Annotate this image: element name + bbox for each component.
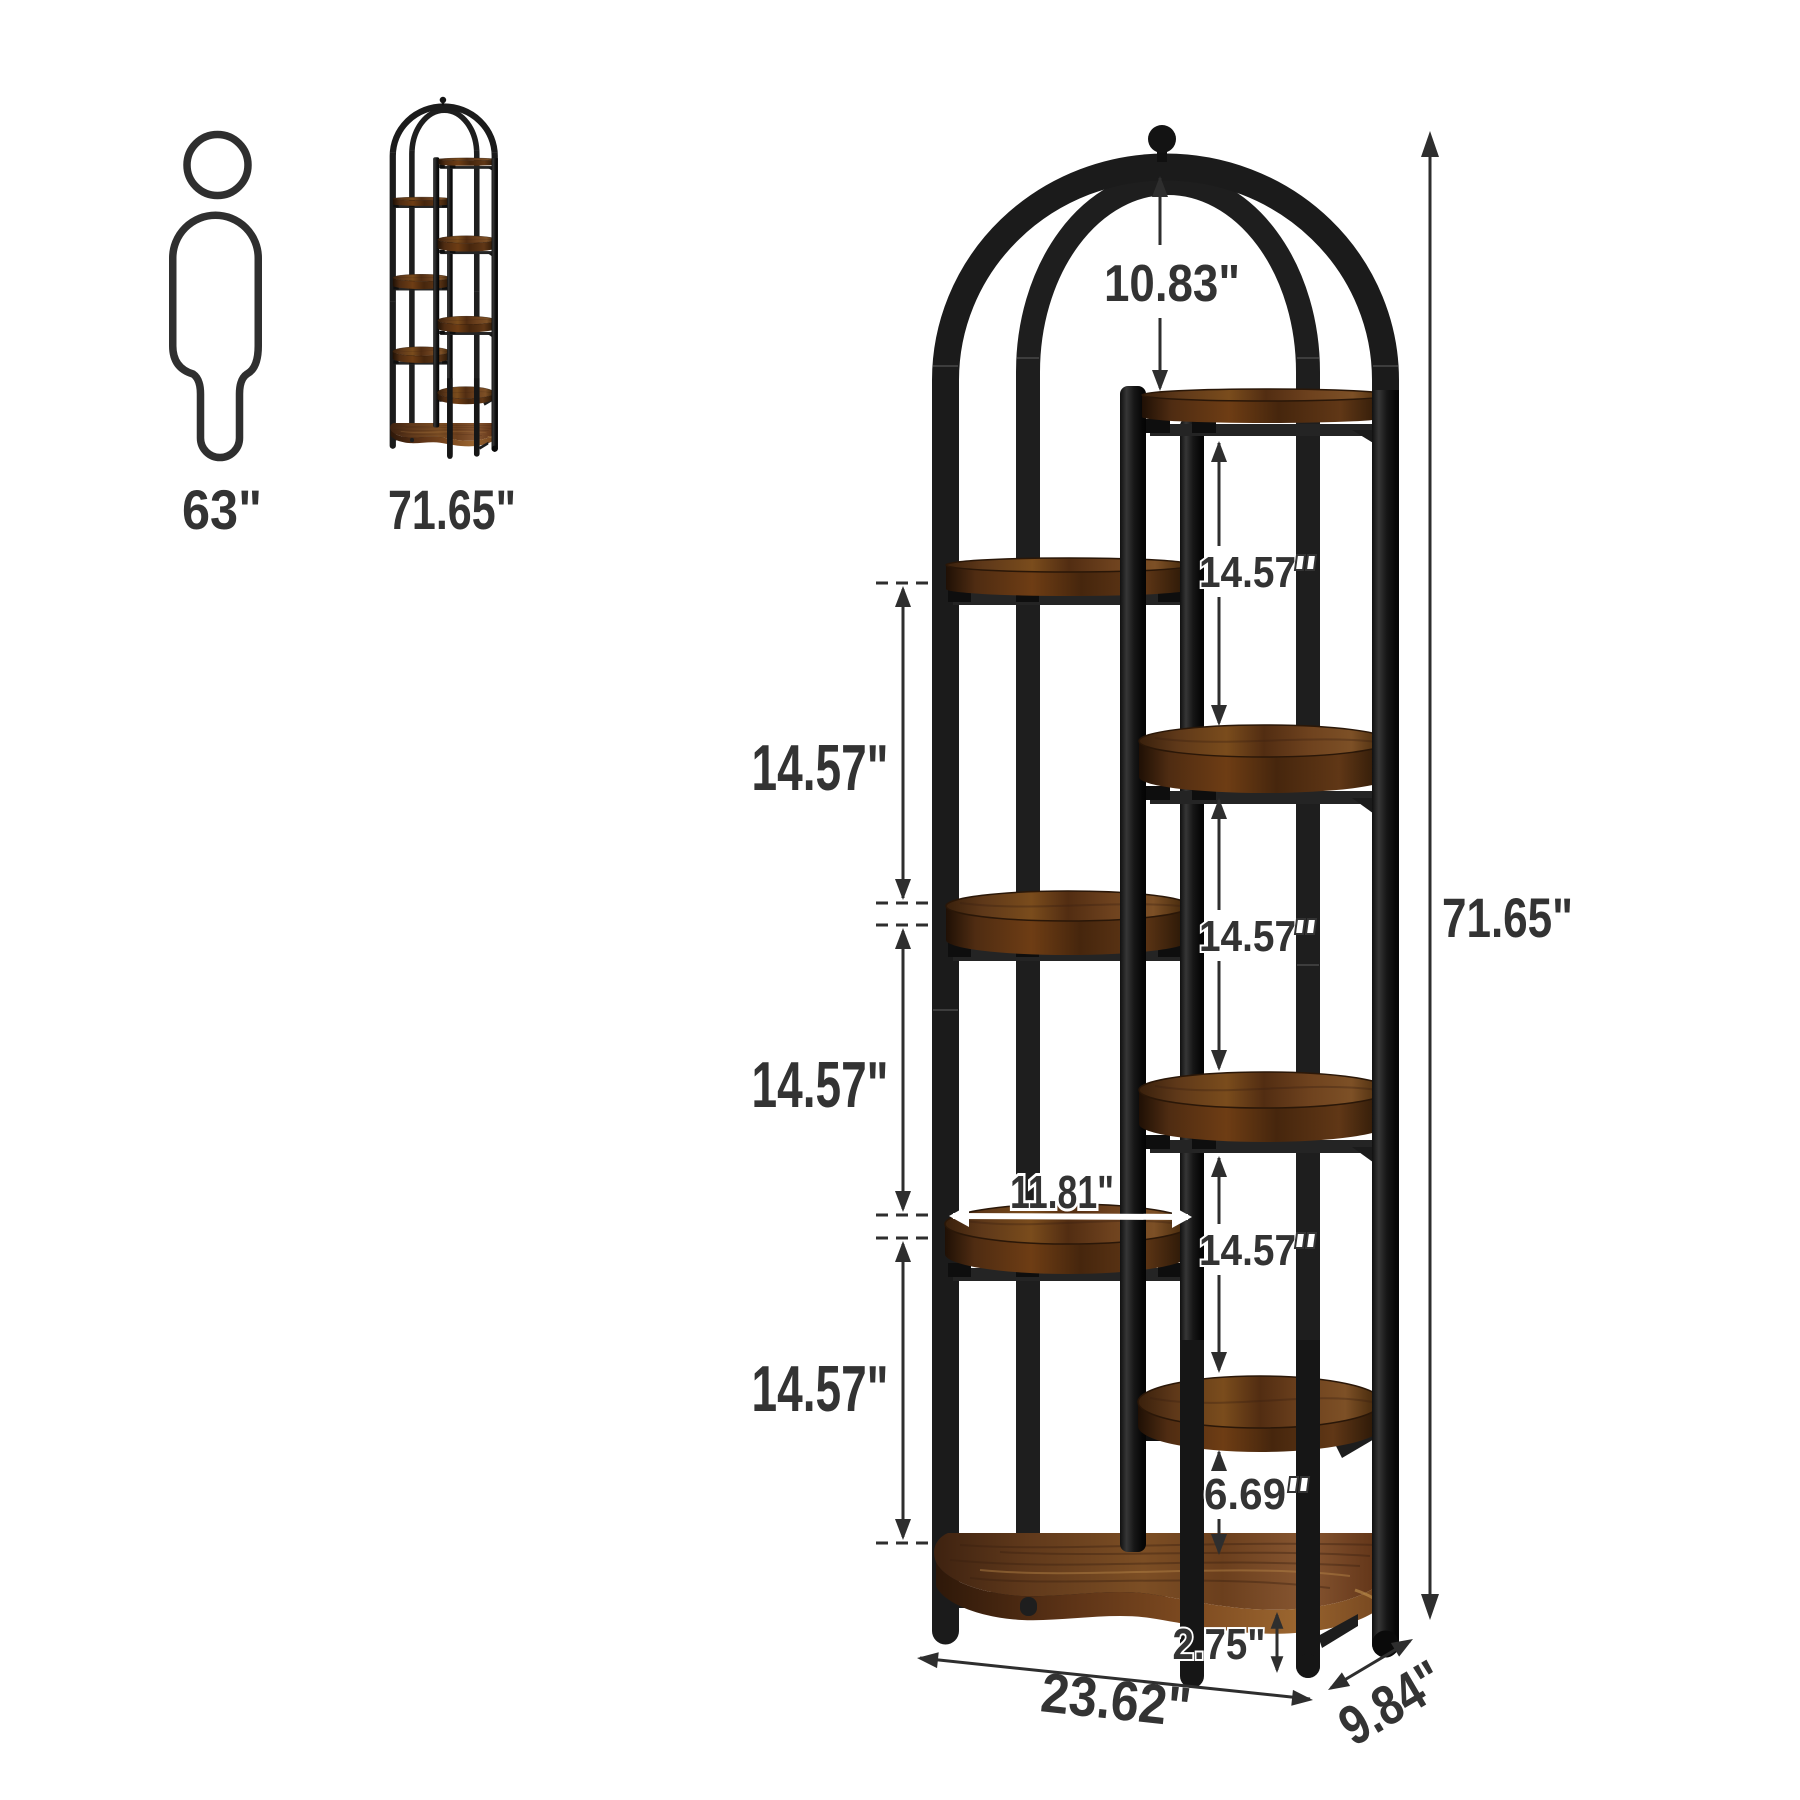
svg-text:9.84": 9.84": [1328, 1647, 1455, 1757]
svg-text:14.57: 14.57: [1199, 912, 1296, 961]
svg-text:71.65": 71.65": [1442, 886, 1573, 949]
svg-text:10.83": 10.83": [1104, 255, 1240, 313]
svg-text:2.75": 2.75": [1173, 1620, 1266, 1669]
svg-text:6.69: 6.69: [1204, 1470, 1286, 1519]
svg-text:63": 63": [182, 478, 262, 541]
svg-text:71.65": 71.65": [388, 478, 516, 541]
svg-text:11.81": 11.81": [1010, 1166, 1114, 1218]
svg-text:14.57": 14.57": [752, 1352, 889, 1425]
svg-text:14.57: 14.57: [1199, 548, 1296, 597]
svg-text:14.57: 14.57: [1199, 1226, 1296, 1275]
svg-text:14.57": 14.57": [752, 1048, 889, 1121]
svg-text:23.62": 23.62": [1038, 1660, 1194, 1738]
svg-text:14.57": 14.57": [752, 731, 889, 804]
